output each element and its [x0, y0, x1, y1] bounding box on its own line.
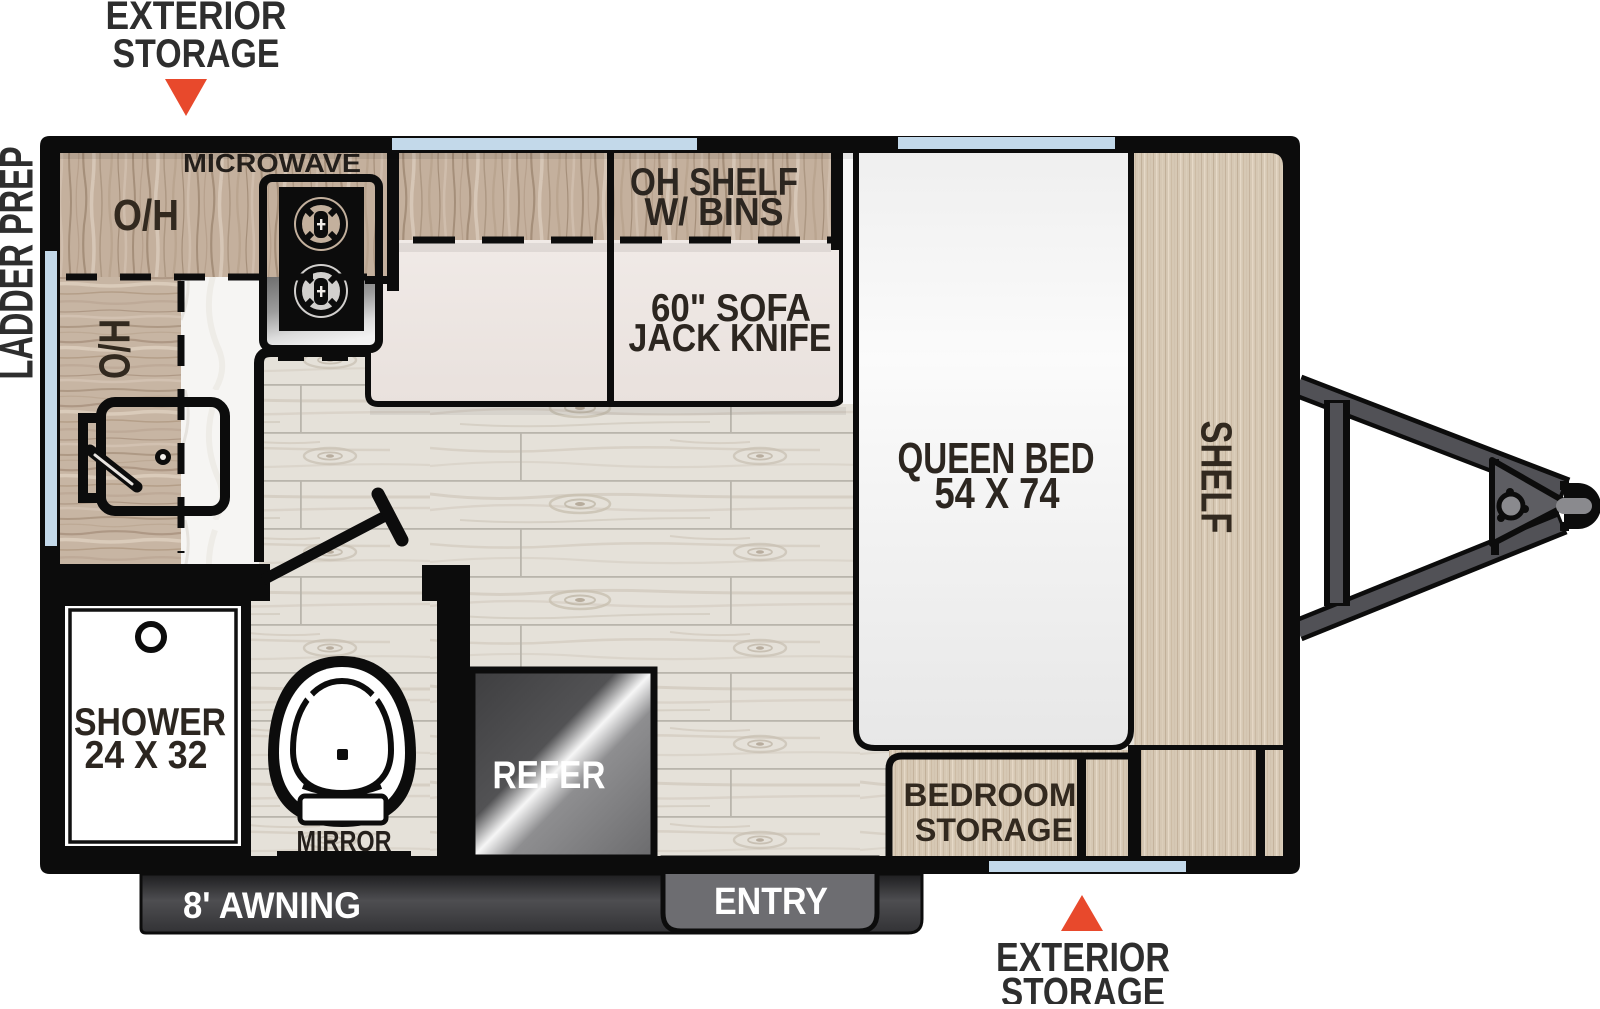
svg-text:STORAGE: STORAGE [1001, 969, 1165, 1004]
svg-text:8' AWNING: 8' AWNING [183, 885, 361, 926]
svg-text:STORAGE: STORAGE [915, 812, 1073, 848]
svg-text:BEDROOM: BEDROOM [904, 777, 1077, 813]
svg-text:REFER: REFER [493, 754, 606, 797]
svg-text:54 X 74: 54 X 74 [935, 469, 1060, 518]
svg-text:SHELF: SHELF [1192, 421, 1241, 534]
svg-text:24 X 32: 24 X 32 [85, 734, 208, 777]
svg-text:O/H: O/H [91, 319, 140, 379]
svg-text:STORAGE: STORAGE [113, 32, 280, 76]
svg-text:LADDER PREP: LADDER PREP [0, 147, 43, 380]
svg-text:ENTRY: ENTRY [714, 881, 828, 923]
svg-text:MIRROR: MIRROR [297, 826, 392, 858]
svg-text:JACK KNIFE: JACK KNIFE [629, 317, 832, 360]
svg-text:W/ BINS: W/ BINS [645, 191, 784, 234]
svg-text:O/H: O/H [113, 191, 179, 240]
